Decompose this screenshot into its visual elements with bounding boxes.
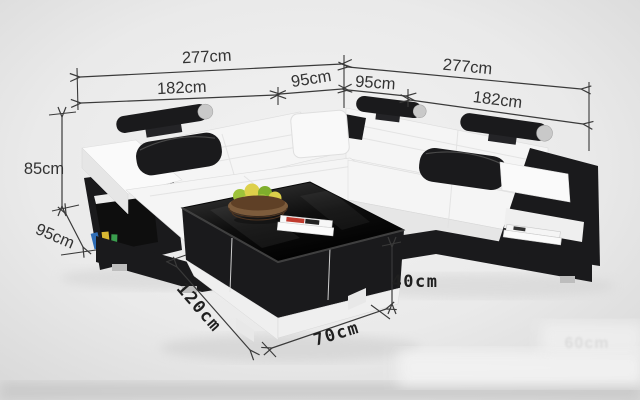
dim-label-back-height: 85cm: [24, 160, 64, 178]
corner-pillow: [290, 110, 350, 159]
dim-label-left-seat: 182cm: [157, 78, 207, 98]
faded-watermark-text: 60cm: [565, 335, 610, 352]
dim-label-right-corner: 95cm: [355, 73, 397, 94]
dim-label-table-height: 40cm: [392, 272, 439, 292]
dim-label-left-total: 277cm: [182, 47, 232, 68]
sofa-foot: [560, 276, 575, 283]
sofa-foot: [112, 264, 127, 271]
sofa-right-arm: [496, 148, 600, 266]
scene-canvas: 60cm 277cm 182cm 95cm 95cm 182cm 2: [0, 0, 640, 400]
product-dimension-image: 60cm 277cm 182cm 95cm 95cm 182cm 2: [0, 0, 640, 400]
